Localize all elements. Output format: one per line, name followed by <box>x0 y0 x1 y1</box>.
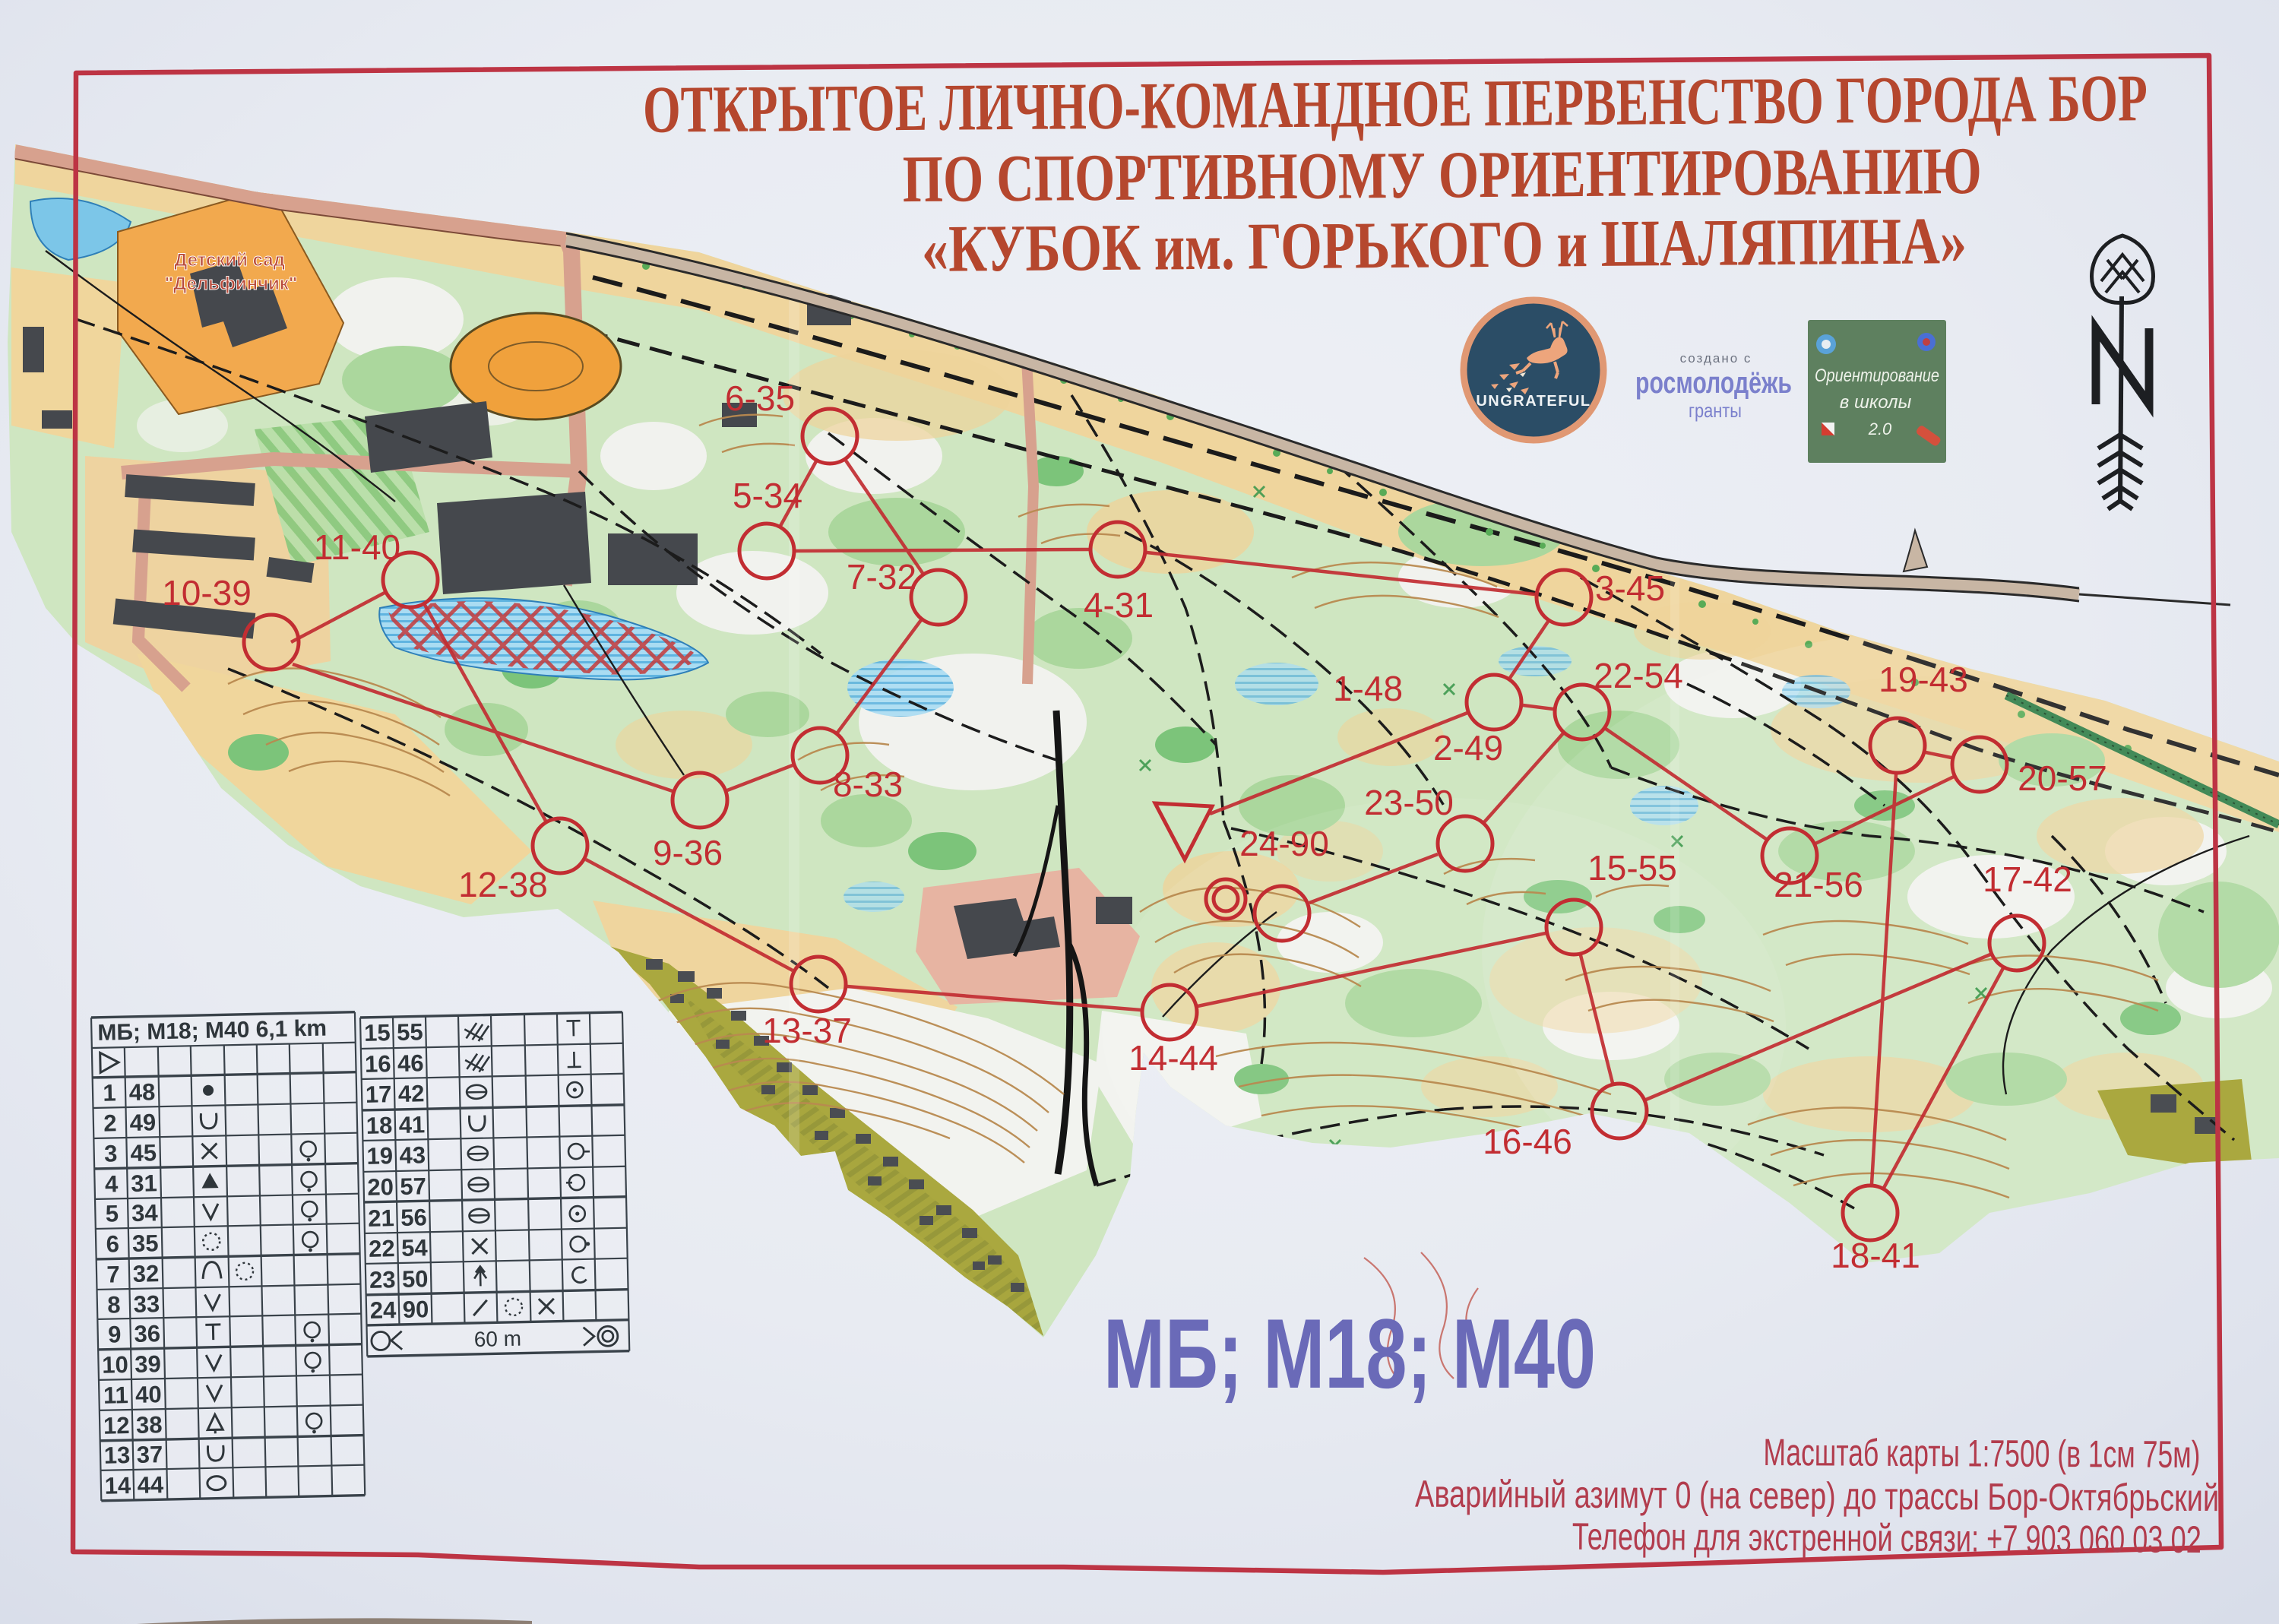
svg-text:31: 31 <box>131 1170 157 1197</box>
svg-text:34: 34 <box>131 1199 159 1227</box>
svg-text:24: 24 <box>369 1296 397 1324</box>
svg-text:50: 50 <box>402 1265 429 1293</box>
svg-text:23-50: 23-50 <box>1364 783 1454 822</box>
svg-text:19: 19 <box>366 1142 393 1170</box>
svg-text:10: 10 <box>102 1351 128 1379</box>
svg-text:45: 45 <box>130 1139 157 1167</box>
svg-text:4: 4 <box>105 1170 119 1197</box>
svg-text:42: 42 <box>398 1080 425 1107</box>
svg-text:46: 46 <box>397 1049 424 1077</box>
svg-text:4-31: 4-31 <box>1084 585 1154 625</box>
svg-text:9-36: 9-36 <box>653 833 723 872</box>
svg-text:48: 48 <box>128 1078 155 1106</box>
svg-text:10-39: 10-39 <box>162 573 252 613</box>
svg-text:15-55: 15-55 <box>1587 848 1677 888</box>
svg-text:11-40: 11-40 <box>314 527 400 567</box>
svg-text:21: 21 <box>368 1205 394 1232</box>
svg-text:56: 56 <box>400 1204 427 1231</box>
svg-text:Ориентирование: Ориентирование <box>1815 366 1939 386</box>
svg-text:22-54: 22-54 <box>1594 656 1683 695</box>
svg-text:8-33: 8-33 <box>833 765 903 804</box>
svg-text:15: 15 <box>364 1019 391 1046</box>
svg-text:18: 18 <box>366 1112 392 1139</box>
svg-text:36: 36 <box>134 1320 160 1347</box>
svg-text:16-46: 16-46 <box>1483 1122 1572 1161</box>
svg-text:2: 2 <box>103 1110 117 1136</box>
svg-text:14: 14 <box>104 1472 131 1499</box>
svg-text:Детский сад: Детский сад <box>174 250 285 271</box>
svg-text:18-41: 18-41 <box>1831 1236 1920 1275</box>
svg-text:1: 1 <box>103 1079 116 1106</box>
svg-text:21-56: 21-56 <box>1774 865 1863 904</box>
svg-text:12-38: 12-38 <box>458 865 548 904</box>
svg-text:14-44: 14-44 <box>1128 1038 1218 1078</box>
svg-text:19-43: 19-43 <box>1879 660 1968 699</box>
svg-text:3: 3 <box>104 1140 118 1167</box>
svg-text:6-35: 6-35 <box>725 378 795 418</box>
svg-text:16: 16 <box>365 1050 391 1078</box>
svg-text:5: 5 <box>105 1200 119 1227</box>
svg-text:13: 13 <box>103 1442 130 1469</box>
svg-text:12: 12 <box>103 1412 130 1439</box>
svg-text:33: 33 <box>133 1290 160 1318</box>
svg-text:23: 23 <box>369 1266 396 1293</box>
svg-text:2.0: 2.0 <box>1868 419 1892 438</box>
svg-text:40: 40 <box>135 1381 162 1408</box>
svg-text:49: 49 <box>129 1109 156 1136</box>
svg-text:24-90: 24-90 <box>1239 824 1329 863</box>
svg-text:20: 20 <box>367 1173 394 1201</box>
svg-text:43: 43 <box>399 1141 426 1169</box>
svg-text:20-57: 20-57 <box>2018 758 2107 798</box>
svg-text:60 m: 60 m <box>473 1327 521 1351</box>
svg-text:3-45: 3-45 <box>1595 568 1665 608</box>
svg-text:22: 22 <box>369 1235 395 1262</box>
svg-text:6: 6 <box>106 1230 119 1257</box>
svg-text:11: 11 <box>103 1382 129 1409</box>
svg-text:41: 41 <box>398 1111 425 1138</box>
svg-text:7-32: 7-32 <box>847 557 916 597</box>
svg-text:Масштаб карты 1:7500 (в 1см 75: Масштаб карты 1:7500 (в 1см 75м) <box>1763 1431 2200 1476</box>
svg-text:32: 32 <box>132 1260 159 1287</box>
svg-text:38: 38 <box>136 1411 163 1439</box>
svg-text:МБ; М18; М40 6,1 km: МБ; М18; М40 6,1 km <box>97 1016 327 1046</box>
svg-text:5-34: 5-34 <box>733 476 802 515</box>
svg-text:57: 57 <box>400 1173 426 1200</box>
svg-text:54: 54 <box>401 1234 429 1262</box>
svg-text:1-48: 1-48 <box>1333 669 1403 708</box>
svg-text:росмолодёжь: росмолодёжь <box>1635 366 1792 400</box>
svg-text:90: 90 <box>402 1296 429 1323</box>
svg-text:ПО СПОРТИВНОМУ ОРИЕНТИРОВАНИЮ: ПО СПОРТИВНОМУ ОРИЕНТИРОВАНИЮ <box>902 135 1982 217</box>
svg-text:«КУБОК им. ГОРЬКОГО и ШАЛЯПИНА: «КУБОК им. ГОРЬКОГО и ШАЛЯПИНА» <box>922 204 1967 286</box>
svg-text:17: 17 <box>366 1081 392 1108</box>
svg-text:создано с: создано с <box>1680 351 1752 366</box>
svg-text:7: 7 <box>106 1261 120 1287</box>
svg-text:8: 8 <box>107 1291 121 1318</box>
svg-text:Аварийный азимут 0 (на север): Аварийный азимут 0 (на север) до трассы … <box>1415 1473 2219 1520</box>
svg-text:44: 44 <box>137 1471 164 1499</box>
svg-text:13-37: 13-37 <box>762 1011 852 1050</box>
svg-text:39: 39 <box>135 1350 161 1378</box>
svg-text:9: 9 <box>108 1321 122 1347</box>
svg-text:17-42: 17-42 <box>1983 859 2072 899</box>
svg-text:в школы: в школы <box>1840 392 1912 413</box>
svg-text:2-49: 2-49 <box>1433 728 1503 768</box>
svg-text:гранты: гранты <box>1689 399 1742 422</box>
svg-text:35: 35 <box>132 1230 159 1257</box>
svg-text:55: 55 <box>397 1018 423 1046</box>
svg-text:37: 37 <box>136 1441 163 1468</box>
svg-text:МБ; М18; М40: МБ; М18; М40 <box>1103 1298 1596 1409</box>
svg-text:"Дельфинчик": "Дельфинчик" <box>165 274 297 294</box>
svg-text:Телефон для экстренной связи:: Телефон для экстренной связи: +7 903 060… <box>1572 1515 2201 1561</box>
svg-text:UNGRATEFUL: UNGRATEFUL <box>1476 393 1591 410</box>
